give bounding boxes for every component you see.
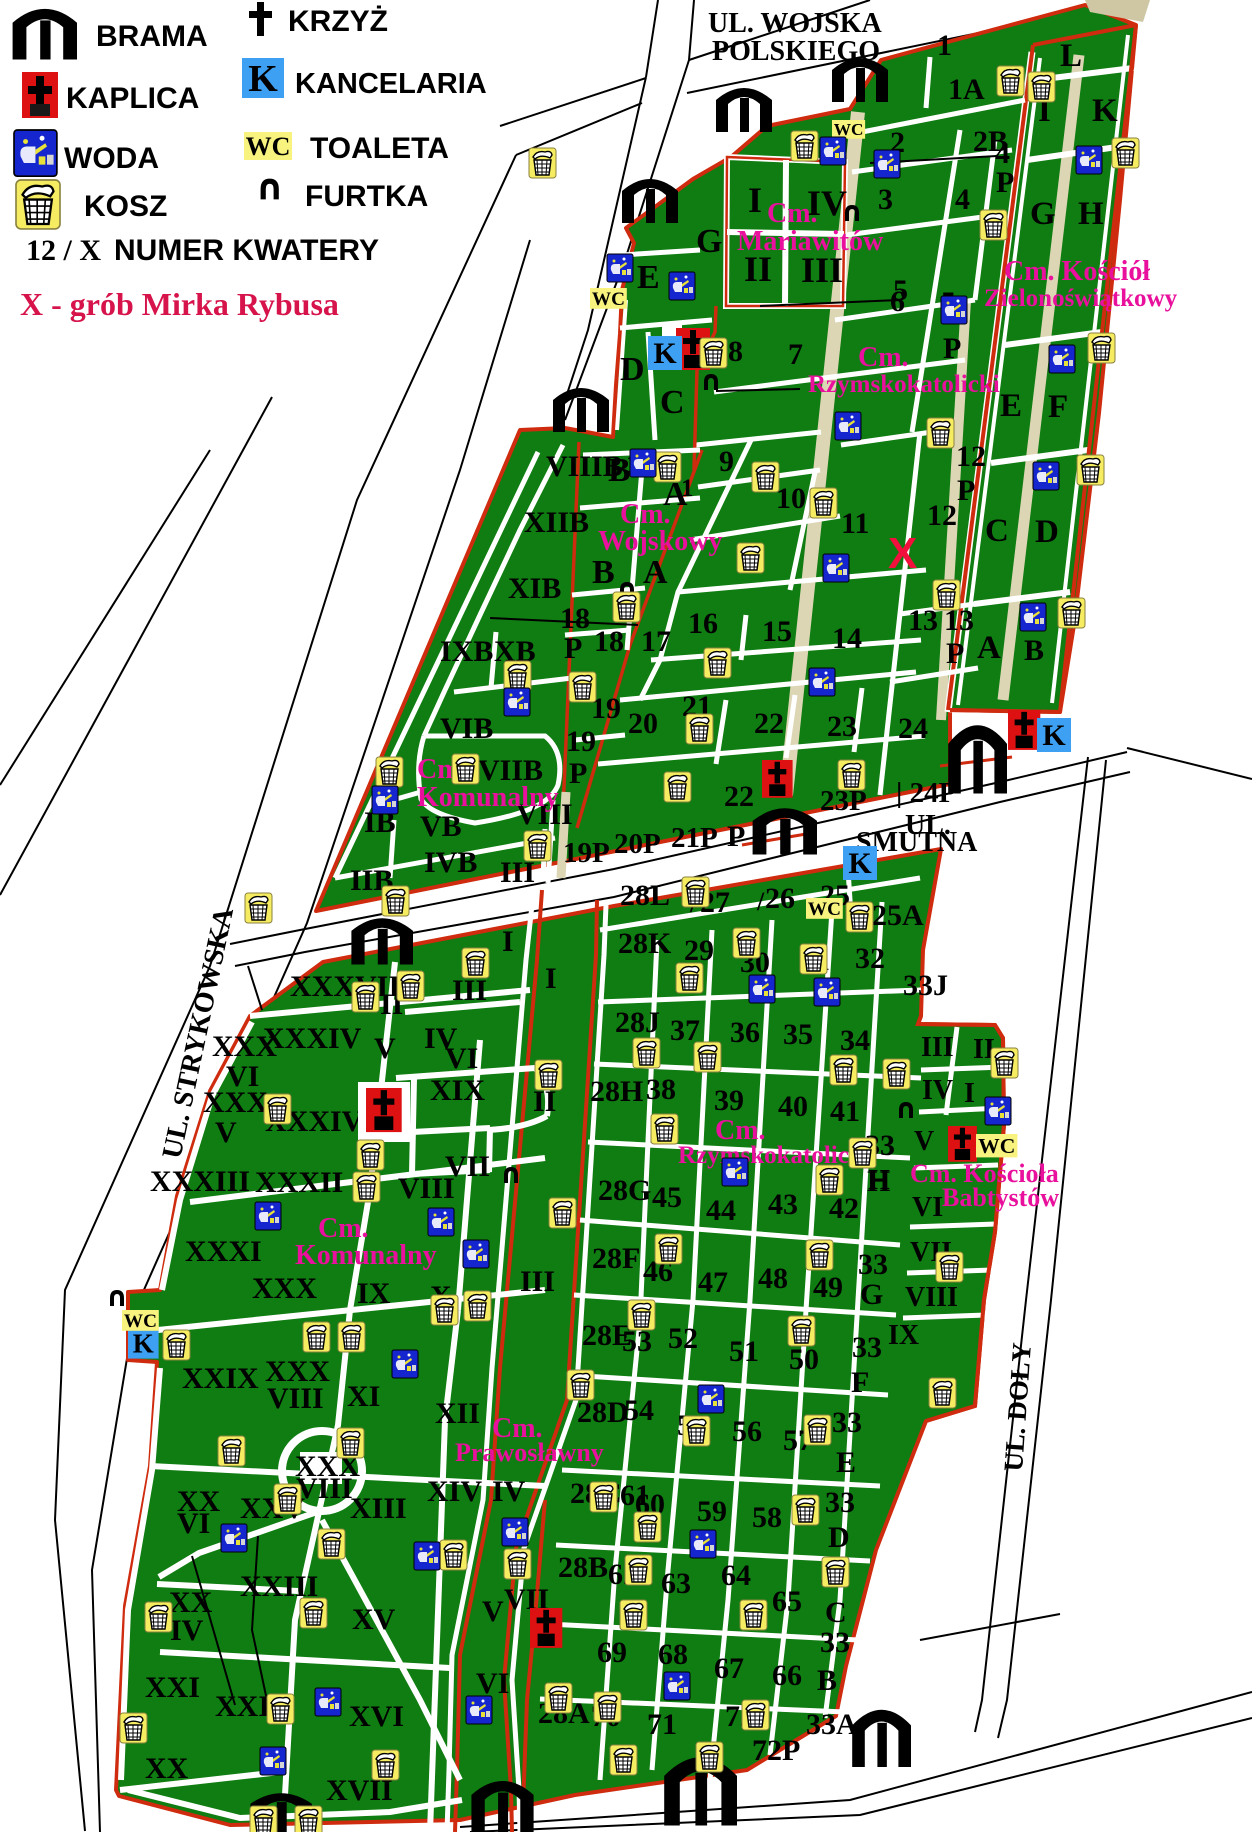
svg-text:IVB: IVB: [424, 846, 477, 879]
svg-text:72P: 72P: [752, 1734, 800, 1767]
svg-text:D: D: [828, 1521, 850, 1554]
svg-text:17: 17: [641, 625, 671, 658]
svg-text:41: 41: [830, 1095, 860, 1128]
svg-text:VI: VI: [177, 1507, 210, 1540]
svg-text:34: 34: [840, 1024, 870, 1057]
svg-text:8: 8: [728, 335, 743, 368]
svg-text:4: 4: [955, 183, 970, 216]
svg-text:KANCELARIA: KANCELARIA: [295, 68, 487, 100]
svg-text:6: 6: [890, 285, 905, 318]
svg-text:45: 45: [652, 1181, 682, 1214]
svg-text:VIII: VIII: [398, 1172, 455, 1205]
svg-text:49: 49: [813, 1271, 843, 1304]
svg-text:XVI: XVI: [349, 1700, 404, 1733]
svg-text:3: 3: [878, 183, 893, 216]
svg-text:P: P: [569, 757, 587, 790]
svg-text:1: 1: [937, 29, 952, 62]
svg-text:42: 42: [829, 1192, 859, 1225]
svg-text:40: 40: [778, 1090, 808, 1123]
svg-text:Cm. Kościół: Cm. Kościół: [1004, 256, 1150, 287]
svg-text:E: E: [1000, 388, 1022, 424]
svg-text:C: C: [825, 1596, 847, 1629]
svg-text:59: 59: [697, 1495, 727, 1528]
svg-text:32: 32: [855, 942, 885, 975]
svg-text:I: I: [502, 925, 514, 958]
svg-text:15: 15: [762, 615, 792, 648]
svg-text:X - grób Mirka Rybusa: X - grób Mirka Rybusa: [20, 286, 339, 322]
svg-text:68: 68: [658, 1638, 688, 1671]
svg-text:33: 33: [820, 1626, 850, 1659]
svg-text:25A: 25A: [872, 899, 924, 932]
svg-text:V: V: [914, 1126, 934, 1157]
svg-text:| 24P: | 24P: [896, 777, 956, 809]
svg-text:F: F: [1048, 389, 1068, 425]
svg-text:36: 36: [730, 1016, 760, 1049]
svg-text:65: 65: [772, 1585, 802, 1618]
svg-text:P: P: [564, 632, 582, 665]
svg-text:28B: 28B: [558, 1551, 608, 1584]
svg-text:47: 47: [698, 1266, 728, 1299]
svg-text:I: I: [748, 180, 762, 220]
svg-text:H: H: [868, 1165, 890, 1196]
svg-text:VIII: VIII: [905, 1282, 958, 1313]
svg-text:20P: 20P: [614, 828, 661, 860]
svg-text:18: 18: [594, 625, 624, 658]
svg-text:H: H: [1078, 196, 1104, 232]
svg-text:44: 44: [706, 1194, 736, 1227]
svg-text:XXI: XXI: [145, 1671, 200, 1704]
svg-text:K: K: [1092, 93, 1118, 129]
svg-text:28F: 28F: [592, 1242, 640, 1275]
svg-text:52: 52: [668, 1322, 698, 1355]
svg-text:58: 58: [752, 1501, 782, 1534]
svg-text:I: I: [545, 962, 557, 995]
svg-text:28G: 28G: [598, 1174, 651, 1207]
svg-text:35: 35: [783, 1018, 813, 1051]
svg-text:56: 56: [732, 1415, 762, 1448]
svg-text:III: III: [452, 974, 487, 1007]
svg-text:V: V: [482, 1595, 504, 1628]
svg-text:28D: 28D: [577, 1396, 629, 1429]
svg-text:1A: 1A: [948, 73, 985, 106]
svg-text:28L: 28L: [620, 879, 670, 912]
svg-text:B: B: [817, 1664, 837, 1697]
svg-text:Wojskowy: Wojskowy: [598, 526, 722, 557]
svg-text:G: G: [1030, 196, 1056, 232]
svg-text:22: 22: [754, 707, 784, 740]
svg-text:F: F: [851, 1366, 869, 1399]
svg-text:VIII: VIII: [267, 1382, 324, 1415]
svg-text:BRAMA: BRAMA: [96, 20, 208, 53]
svg-text:VIIIB: VIIIB: [546, 450, 623, 483]
svg-text:28K: 28K: [618, 927, 672, 960]
svg-text:IX: IX: [888, 1320, 919, 1351]
svg-text:29: 29: [684, 934, 714, 967]
svg-text:XX: XX: [145, 1752, 189, 1785]
svg-text:50: 50: [789, 1343, 819, 1376]
svg-text:I: I: [964, 1078, 975, 1109]
svg-text:9: 9: [719, 445, 734, 478]
svg-text:IV: IV: [922, 1075, 953, 1106]
svg-text:28J: 28J: [615, 1006, 660, 1039]
svg-text:64: 64: [721, 1559, 751, 1592]
svg-text:Prawosławny: Prawosławny: [455, 1438, 604, 1467]
svg-text:69: 69: [597, 1636, 627, 1669]
svg-text:XXIX: XXIX: [182, 1362, 259, 1395]
svg-text:XXXII: XXXII: [255, 1166, 343, 1199]
svg-text:19P: 19P: [563, 837, 610, 869]
svg-text:XIIB: XIIB: [524, 506, 589, 539]
svg-text:10: 10: [776, 482, 806, 515]
svg-text:C: C: [660, 384, 685, 421]
svg-text:A: A: [643, 554, 668, 591]
svg-text:FURTKA: FURTKA: [305, 180, 428, 213]
svg-text:XXX: XXX: [252, 1272, 317, 1305]
svg-text:XIII: XIII: [350, 1492, 407, 1525]
svg-text:Cm.: Cm.: [767, 198, 818, 229]
svg-text:E: E: [836, 1446, 856, 1479]
svg-text:Rzymskokatolicki: Rzymskokatolicki: [808, 371, 1000, 398]
svg-text:VI: VI: [912, 1192, 943, 1223]
svg-text:VI: VI: [445, 1042, 478, 1075]
svg-text:L: L: [1060, 38, 1082, 74]
svg-text:P: P: [727, 820, 745, 853]
svg-text:51: 51: [729, 1335, 759, 1368]
svg-text:20: 20: [628, 707, 658, 740]
svg-text:KAPLICA: KAPLICA: [66, 82, 199, 115]
svg-text:XXX: XXX: [212, 1030, 277, 1063]
svg-text:TOALETA: TOALETA: [310, 132, 449, 165]
svg-text:IV: IV: [492, 1475, 526, 1508]
svg-text:18: 18: [560, 602, 590, 635]
svg-text:NUMER KWATERY: NUMER KWATERY: [114, 234, 379, 267]
svg-text:G: G: [860, 1278, 883, 1311]
svg-text:K: K: [248, 58, 278, 100]
svg-text:XII: XII: [435, 1397, 480, 1430]
svg-text:16: 16: [688, 607, 718, 640]
svg-text:33J: 33J: [903, 969, 948, 1002]
svg-text:63: 63: [661, 1567, 691, 1600]
svg-text:48: 48: [758, 1262, 788, 1295]
svg-text:Mariawitów: Mariawitów: [737, 226, 884, 257]
svg-text:UL. WOJSKA: UL. WOJSKA: [708, 8, 883, 39]
svg-text:33: 33: [852, 1331, 882, 1364]
svg-text:P: P: [943, 332, 961, 365]
svg-text:/: /: [756, 887, 765, 916]
svg-text:P: P: [957, 474, 975, 507]
svg-text:33: 33: [858, 1248, 888, 1281]
svg-text:14: 14: [832, 622, 862, 655]
svg-text:XXX: XXX: [203, 1086, 268, 1119]
svg-text:V: V: [215, 1116, 237, 1149]
svg-text:Komunalny: Komunalny: [295, 1240, 437, 1271]
svg-text:67: 67: [714, 1652, 744, 1685]
svg-text:D: D: [620, 351, 645, 388]
svg-text:Cm.: Cm.: [858, 342, 909, 373]
svg-text:11: 11: [841, 507, 869, 540]
svg-text:III: III: [921, 1032, 954, 1063]
svg-text:12: 12: [956, 440, 986, 473]
svg-text:28H: 28H: [590, 1075, 643, 1108]
svg-text:XXXI: XXXI: [185, 1235, 262, 1268]
svg-text:33: 33: [832, 1406, 862, 1439]
svg-text:54: 54: [624, 1394, 654, 1427]
svg-text:G: G: [696, 223, 722, 260]
svg-text:Komunalny: Komunalny: [417, 782, 559, 813]
svg-text:1: 1: [681, 475, 694, 502]
svg-text:XXXIV: XXXIV: [263, 1022, 362, 1055]
svg-text:33A: 33A: [806, 1708, 858, 1741]
svg-text:IV: IV: [170, 1614, 204, 1647]
svg-text:71: 71: [647, 1708, 677, 1741]
svg-text:IX: IX: [357, 1277, 391, 1310]
svg-text:WC: WC: [246, 132, 291, 161]
svg-text:B: B: [592, 554, 615, 591]
svg-text:XIV: XIV: [427, 1475, 482, 1508]
svg-text:26: 26: [765, 882, 795, 915]
svg-text:Zielonoświątkowy: Zielonoświątkowy: [984, 285, 1178, 312]
svg-text:V: V: [374, 1032, 396, 1065]
svg-text:7: 7: [788, 338, 803, 371]
svg-text:Babtystów: Babtystów: [942, 1183, 1059, 1212]
svg-text:C: C: [985, 513, 1009, 549]
svg-text:XXXIII: XXXIII: [150, 1165, 250, 1198]
svg-text:III: III: [520, 1265, 555, 1298]
svg-text:D: D: [1035, 514, 1059, 550]
svg-text:66: 66: [772, 1659, 802, 1692]
svg-text:VI: VI: [476, 1667, 509, 1700]
svg-text:43: 43: [768, 1188, 798, 1221]
svg-text:21P: 21P: [671, 822, 718, 854]
svg-text:XV: XV: [352, 1603, 396, 1636]
svg-text:P: P: [996, 166, 1014, 199]
svg-text:E: E: [637, 259, 660, 296]
svg-text:VB: VB: [420, 810, 462, 843]
svg-text:33: 33: [825, 1486, 855, 1519]
svg-text:XIX: XIX: [430, 1074, 485, 1107]
svg-text:P: P: [946, 637, 964, 670]
svg-text:12: 12: [927, 499, 957, 532]
svg-text:23: 23: [827, 710, 857, 743]
svg-text:XIB: XIB: [508, 572, 561, 605]
svg-text:A: A: [977, 630, 1001, 666]
svg-text:KOSZ: KOSZ: [84, 190, 167, 223]
svg-text:B: B: [1024, 634, 1044, 667]
svg-text:22: 22: [724, 780, 754, 813]
svg-text:12 / X: 12 / X: [26, 234, 101, 267]
svg-text:WODA: WODA: [64, 142, 159, 175]
svg-text:XI: XI: [347, 1380, 380, 1413]
svg-text:X: X: [888, 529, 917, 578]
svg-text:IXB: IXB: [440, 635, 493, 668]
svg-text:VIB: VIB: [440, 712, 493, 745]
svg-text:38: 38: [646, 1073, 676, 1106]
svg-text:19: 19: [566, 725, 596, 758]
svg-text:KRZYŻ: KRZYŻ: [288, 5, 388, 38]
svg-text:39: 39: [714, 1084, 744, 1117]
svg-text:24: 24: [898, 712, 928, 745]
